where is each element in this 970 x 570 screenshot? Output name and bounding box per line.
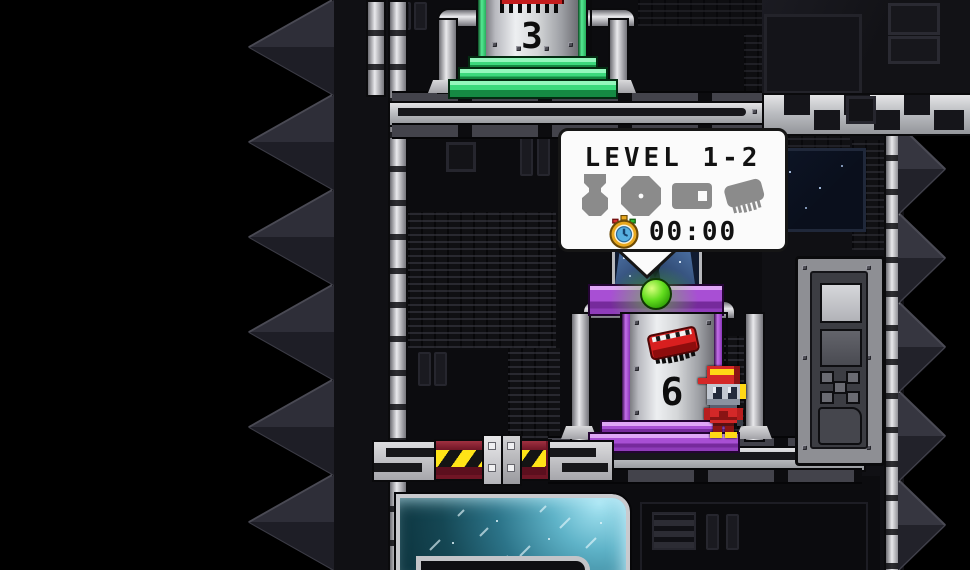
popup-tail (612, 248, 682, 280)
tower-edge (578, 0, 586, 56)
hinge-rivet (507, 464, 515, 472)
wall-slot-icon (434, 352, 447, 386)
tower-body-frame: 3 (476, 0, 592, 62)
tower-rivet (492, 42, 497, 47)
panel-rivet (866, 265, 871, 270)
wall-slot-icon (520, 136, 533, 176)
tower-rivet (634, 320, 639, 325)
tower-rivet (634, 366, 639, 371)
wall-texture (508, 348, 560, 438)
tower-base (448, 79, 618, 99)
x-square (833, 381, 847, 394)
panel-rivet (802, 445, 807, 450)
tower-rivet (516, 46, 521, 51)
right-zigzag-edge (898, 125, 944, 570)
maze-notch (934, 110, 964, 130)
x-square (846, 391, 860, 404)
gear-silhouette (620, 175, 662, 217)
stopwatch-icon (609, 215, 639, 249)
wall-slot-icon (537, 136, 550, 176)
maze-notch (904, 95, 930, 115)
game-screen: 3 (0, 0, 970, 570)
wall-square-icon (446, 142, 476, 172)
hinge-rivet (488, 464, 496, 472)
wall-panel (764, 14, 862, 94)
wall-slot-icon (726, 514, 739, 550)
pipe (570, 312, 591, 442)
tower-rivet (634, 410, 639, 415)
robot-player (698, 366, 749, 438)
tower-rivet (568, 42, 573, 47)
girder-rivet (752, 109, 757, 114)
panel-button-dark (820, 329, 862, 367)
tower-orb (640, 278, 672, 310)
panel-inset (810, 271, 868, 449)
girder-slot (398, 108, 746, 116)
medal-silhouette (579, 174, 611, 218)
door-hinge-right (501, 434, 522, 486)
door-hinge-left (482, 434, 503, 486)
tower-rivet (706, 320, 711, 325)
button-panel (795, 256, 885, 466)
left-wall (330, 0, 396, 570)
hinge-rivet (488, 442, 496, 450)
left-zigzag-edge (250, 0, 334, 570)
canister-silhouette (671, 176, 713, 216)
wall-panel (888, 3, 940, 35)
tower-edge (478, 0, 486, 56)
bracket-slot (562, 463, 608, 472)
wall-texture (408, 212, 556, 348)
wall-texture (744, 34, 762, 93)
door-bracket-left (372, 440, 440, 482)
bracket-slot (550, 448, 596, 457)
right-zigzag-teeth (898, 125, 944, 570)
maze-notch (814, 110, 840, 130)
collectible-row (561, 173, 785, 219)
panel-rivet (802, 265, 807, 270)
left-zigzag-teeth (250, 0, 334, 570)
tower-rivet (544, 46, 549, 51)
vertical-pipe (366, 0, 386, 97)
x-square (820, 371, 834, 384)
hinge-rivet (507, 442, 515, 450)
tower-number: 3 (486, 16, 578, 57)
chip-icon (644, 322, 704, 370)
wall-slot-icon (418, 352, 431, 386)
wall-texture (638, 0, 762, 26)
panel-button-blob (818, 407, 862, 445)
wall-square-icon (846, 96, 876, 124)
popup-title: LEVEL 1-2 (561, 143, 785, 173)
tower-edge (622, 314, 630, 422)
maze-notch (784, 95, 810, 115)
wall-panel (888, 36, 940, 64)
door-bracket-right (548, 440, 614, 482)
chip-silhouette (722, 174, 768, 218)
x-square (820, 391, 834, 404)
vertical-pipe (388, 0, 408, 570)
level-popup: LEVEL 1-2 (558, 128, 788, 252)
bracket-slot (374, 463, 422, 472)
timer-value: 00:00 (649, 217, 737, 247)
maze-notch (874, 110, 900, 130)
panel-rivet (802, 355, 807, 360)
chip-pins (500, 4, 560, 13)
inner-glass-frame (416, 556, 590, 570)
panel-button-light (820, 283, 862, 323)
level-tower-3[interactable]: 3 (420, 0, 640, 103)
bracket-slot (386, 448, 434, 457)
glass-chamber (396, 494, 630, 570)
wall-slot-icon (706, 514, 719, 550)
panel-x-cluster (820, 371, 858, 403)
x-square (846, 371, 860, 384)
vent-icon (652, 512, 696, 550)
timer-row: 00:00 (561, 215, 785, 249)
